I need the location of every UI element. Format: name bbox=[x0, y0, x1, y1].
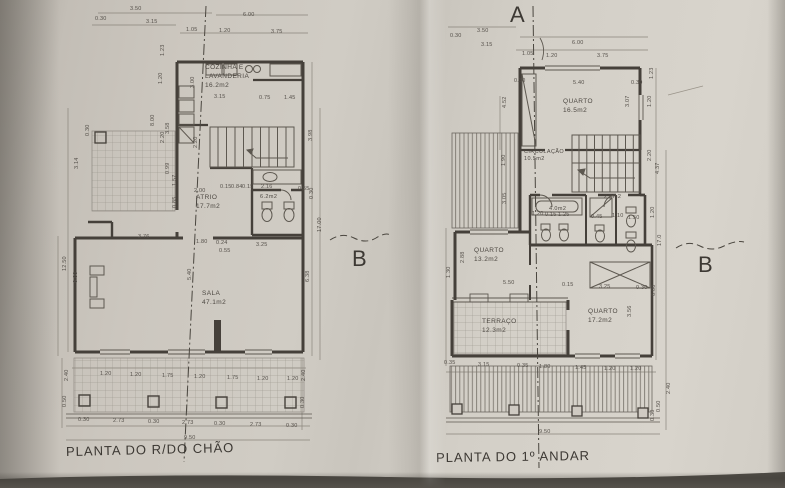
dimension-label: 1.90 bbox=[501, 154, 507, 166]
room-label: QUARTO16.5m2 bbox=[563, 98, 593, 116]
dimension-label: 3.50 bbox=[477, 28, 489, 34]
first-floor-labels: PLANTA DO 1º ANDAR 3.500.303.156.001.051… bbox=[0, 0, 785, 488]
dimension-label: 0.30 bbox=[631, 80, 643, 86]
room-label: TERRAÇO12.3m2 bbox=[482, 318, 517, 336]
dimension-label: 0.35 bbox=[444, 360, 456, 366]
dimension-label: 1.20 bbox=[650, 206, 656, 218]
room-label: QUARTO13.2m2 bbox=[474, 247, 504, 265]
plan-caption-first: PLANTA DO 1º ANDAR bbox=[436, 448, 590, 465]
dimension-label: 2.40 bbox=[666, 382, 672, 394]
dimension-label: 6.00 bbox=[651, 284, 657, 296]
dimension-label: 4.37 bbox=[655, 162, 661, 174]
dimension-label: 3.05 bbox=[502, 192, 508, 204]
dimension-label: 3.07 bbox=[625, 95, 631, 107]
dimension-label: 1.45 bbox=[575, 365, 587, 371]
dimension-label: 0.15 bbox=[562, 282, 574, 288]
dimension-label: 1.23 bbox=[649, 67, 655, 79]
dimension-label: 0.45 bbox=[591, 214, 603, 220]
dimension-label: 2.20 bbox=[647, 149, 653, 161]
room-label: QUARTO17.2m2 bbox=[588, 308, 618, 326]
dimension-label: 0.30 bbox=[636, 285, 648, 291]
section-marker-a: A bbox=[510, 2, 525, 28]
dimension-label: 1.20 bbox=[630, 366, 642, 372]
dimension-label: 4.52 bbox=[502, 96, 508, 108]
dimension-label: 0.30 bbox=[514, 78, 526, 84]
dimension-label: 1.30 bbox=[446, 266, 452, 278]
dimension-label: 1.20 bbox=[546, 53, 558, 59]
dimension-label: 2.88 bbox=[460, 251, 466, 263]
dimension-label: 0.50 bbox=[656, 400, 662, 412]
dimension-label: 1.50 bbox=[628, 215, 640, 221]
dimension-label: 3.15 bbox=[478, 362, 490, 368]
dimension-label: 0.30 bbox=[650, 409, 656, 421]
dimension-label: 6.00 bbox=[572, 40, 584, 46]
dimension-label: 3.56 bbox=[627, 305, 633, 317]
dimension-label: 1.20 bbox=[532, 211, 544, 217]
dimension-label: 3.25 bbox=[599, 284, 611, 290]
dimension-label: 1.10 bbox=[612, 213, 624, 219]
dimension-label: 1.80 bbox=[539, 364, 551, 370]
room-label: 2.5m2 bbox=[604, 194, 621, 201]
section-marker-b: B bbox=[698, 252, 713, 278]
dimension-label: 5.50 bbox=[503, 280, 515, 286]
dimension-label: 1.20 bbox=[604, 366, 616, 372]
dimension-label: 5.40 bbox=[573, 80, 585, 86]
room-label: 4.0m2 bbox=[549, 206, 566, 213]
dimension-label: 3.75 bbox=[597, 53, 609, 59]
dimension-label: 9.50 bbox=[539, 429, 551, 435]
dimension-label: 1.20 bbox=[647, 95, 653, 107]
dimension-label: 1.05 bbox=[522, 51, 534, 57]
dimension-label: 17.0 bbox=[657, 234, 663, 246]
dimension-label: 0.30 bbox=[450, 33, 462, 39]
photographed-floorplan-sheet: PLANTA DO R/DO CHÃO 3.500.303.156.001.05… bbox=[0, 0, 785, 488]
dimension-label: 3.15 bbox=[481, 42, 493, 48]
room-label: CIRCULAÇÃO10.5m2 bbox=[524, 149, 564, 164]
dimension-label: 0.35 bbox=[517, 363, 529, 369]
